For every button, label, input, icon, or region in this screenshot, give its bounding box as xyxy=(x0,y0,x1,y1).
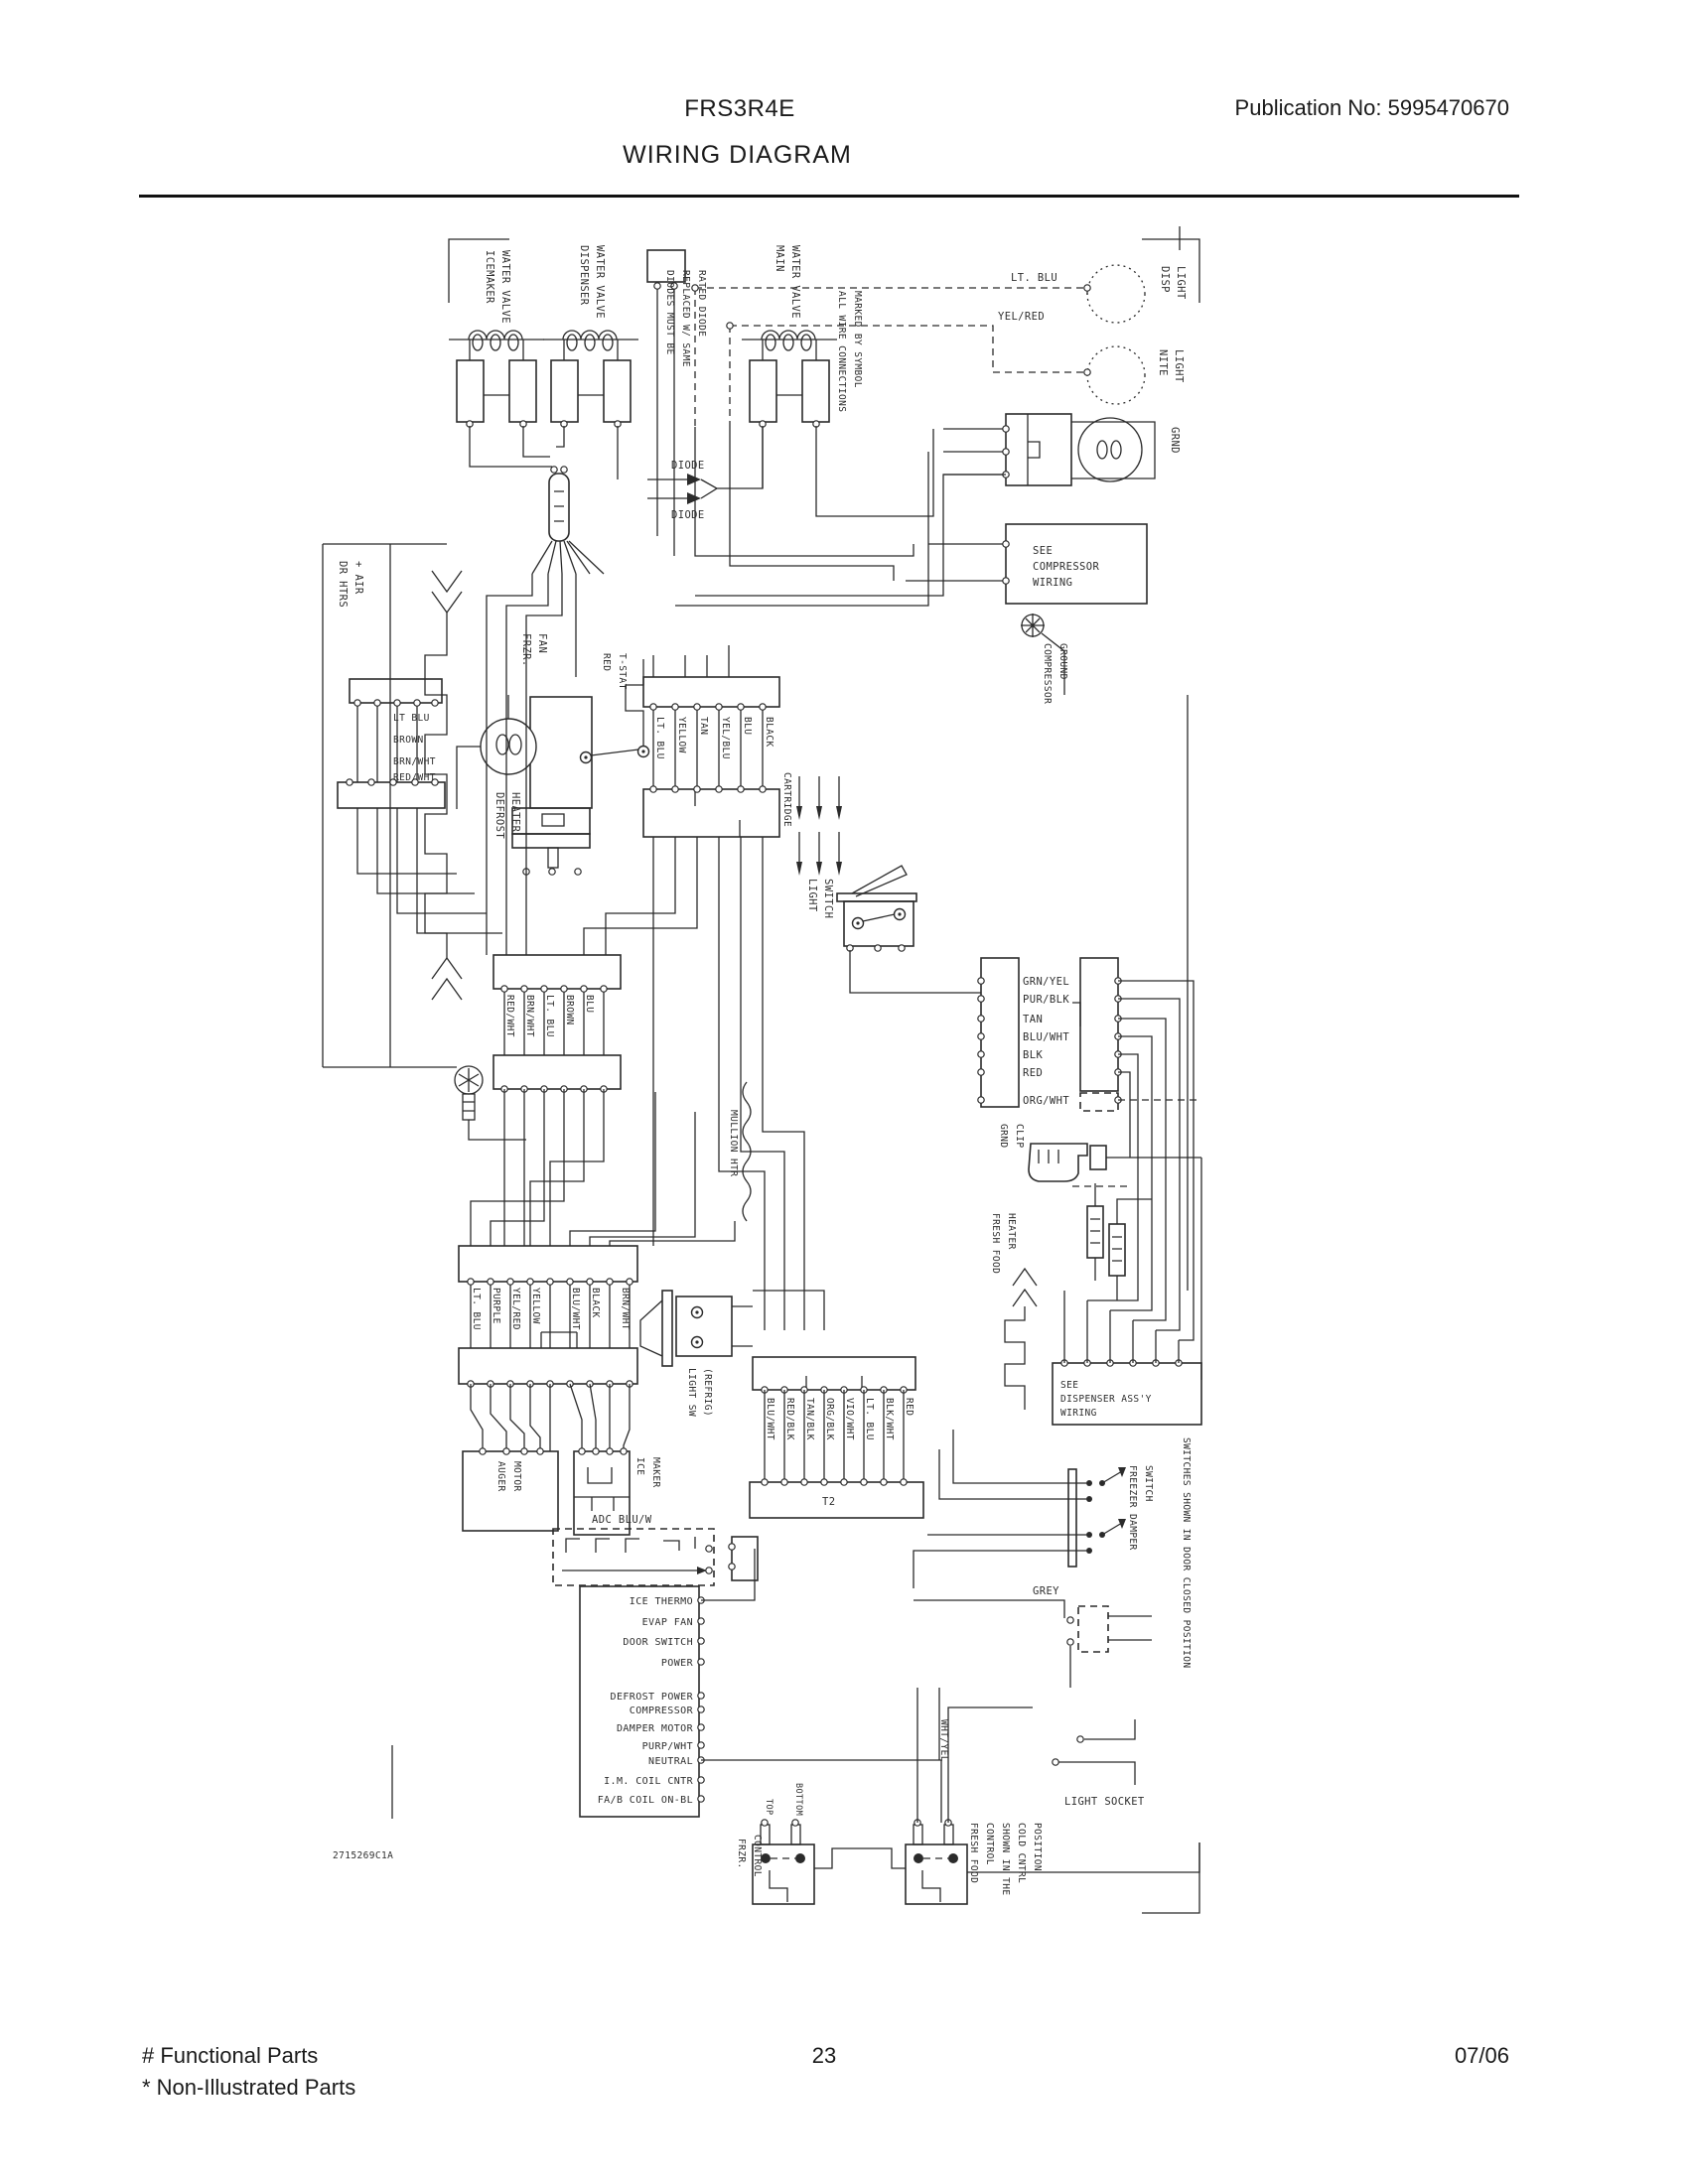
defrost-heater-label: DEFROST xyxy=(493,792,505,839)
nite-light-label: NITE xyxy=(1157,349,1169,376)
diode-note: DIODES MUST BE xyxy=(664,270,675,355)
auger-motor-label: AUGER xyxy=(495,1461,506,1492)
ice-maker-label2: MAKER xyxy=(650,1457,661,1488)
wht-yel-label: WHT/YEL xyxy=(938,1719,949,1762)
board-row-purp-wht: PURP/WHT xyxy=(642,1741,693,1752)
see-dispenser-line1: SEE xyxy=(1060,1380,1078,1391)
c1-wire-5: BLACK xyxy=(764,717,774,748)
diode-note3: RATED DIODE xyxy=(696,270,707,337)
c4-wire-2: TAN xyxy=(1023,1014,1043,1025)
red-tstat-label2: T-STAT xyxy=(617,653,628,690)
see-dispenser-line3: WIRING xyxy=(1060,1408,1097,1419)
light-switch-label: LIGHT xyxy=(806,879,818,912)
t2-label: T2 xyxy=(822,1496,835,1508)
see-compressor-line3: WIRING xyxy=(1033,577,1072,589)
c6-wire-2: TAN/BLK xyxy=(804,1398,815,1440)
footer-date-code: 07/06 xyxy=(1370,2043,1509,2069)
board-row-damper-motor: DAMPER MOTOR xyxy=(617,1723,694,1734)
adc-wire-label: ADC BLU/W xyxy=(592,1514,652,1526)
top-label: TOP xyxy=(764,1799,774,1816)
compressor-ground-label: COMPRESSOR xyxy=(1042,643,1053,704)
diode-note2: REPLACED W/ SAME xyxy=(680,270,691,367)
fuse-links xyxy=(1087,1183,1152,1300)
board-row-defrost-power: DEFROST POWER xyxy=(611,1692,694,1703)
ff-heater-label2: HEATER xyxy=(1006,1213,1017,1250)
connections-note2: MARKED BY SYMBOL xyxy=(852,291,863,388)
ice-maker-dashed-box xyxy=(553,1529,758,1585)
valve3-label2: WATER VALVE xyxy=(789,245,801,319)
board-row-power: POWER xyxy=(661,1658,694,1669)
c5-wire-6: BRN/WHT xyxy=(620,1288,631,1330)
light-sw-refrig-label: LIGHT SW xyxy=(686,1368,697,1417)
defrost-heater-element xyxy=(323,544,462,1067)
c6-wire-7: RED xyxy=(904,1398,914,1416)
c5-wire-2: YEL/RED xyxy=(510,1288,521,1330)
mullion-heater-label: MULLION HTR xyxy=(728,1110,739,1176)
see-compressor-wiring-box xyxy=(906,524,1147,604)
ff-control-label: FRESH FOOD xyxy=(968,1823,979,1883)
c3-wire-4: BLU xyxy=(584,995,595,1013)
ff-control-label2: CONTROL xyxy=(984,1823,995,1865)
c1-wire-0: LT. BLU xyxy=(654,717,665,759)
valve2-label2: WATER VALVE xyxy=(594,245,606,319)
dr-htrs-label: DR HTRS xyxy=(337,561,349,608)
grnd-clip-label: GRND xyxy=(998,1124,1009,1148)
diode-label-top: DIODE xyxy=(671,460,705,472)
harness-sleeve xyxy=(532,250,685,574)
diagram-part-code: 2715269C1A xyxy=(333,1850,393,1861)
c5-wire-0: LT. BLU xyxy=(471,1288,482,1330)
cartridge-label: CARTRIDGE xyxy=(781,772,792,827)
light-socket xyxy=(1053,1719,1135,1785)
defrost-heater-label2: HEATER xyxy=(509,792,521,833)
dispenser-light-circuit xyxy=(692,265,1145,427)
valve1-label2: WATER VALVE xyxy=(499,250,511,324)
c3-wire-2: LT. BLU xyxy=(544,995,555,1037)
freezer-fan-motor xyxy=(457,695,592,875)
c3-wire-0: RED/WHT xyxy=(504,995,515,1037)
board-row-evap-fan: EVAP FAN xyxy=(642,1617,693,1628)
grey-wire-switch xyxy=(993,1600,1152,1688)
see-dispenser-line2: DISPENSER ASS'Y xyxy=(1060,1394,1152,1405)
water-valve-solenoids xyxy=(449,331,837,427)
footer-non-illustrated-parts: * Non-Illustrated Parts xyxy=(142,2075,355,2101)
frzr-control-label: FRZR. xyxy=(736,1839,747,1869)
grey-label: GREY xyxy=(1033,1585,1059,1597)
grnd-label: GRND xyxy=(1169,427,1181,454)
c1-wire-2: TAN xyxy=(698,717,709,735)
connector-c5 xyxy=(459,1246,637,1451)
c5-wire-4: BLU/WHT xyxy=(570,1288,581,1330)
bottom-label: BOTTOM xyxy=(793,1783,803,1816)
connector-c3 xyxy=(455,955,621,1140)
c4-wire-1: PUR/BLK xyxy=(1023,994,1069,1006)
fresh-food-heater-element xyxy=(1005,1269,1037,1410)
dr-htrs-label2: + AIR xyxy=(352,561,364,595)
grnd-clip-label2: CLIP xyxy=(1014,1124,1025,1148)
c6-wire-4: VIO/WHT xyxy=(844,1398,855,1440)
c5-wire-3: YELLOW xyxy=(530,1288,541,1324)
c1-wire-4: BLU xyxy=(742,717,753,735)
board-row-im-coil: I.M. COIL CNTR xyxy=(604,1776,693,1787)
c2-wire-2: BRN/WHT xyxy=(393,756,436,767)
board-row-fab-coil: FA/B COIL ON-BL xyxy=(598,1795,693,1806)
frzr-control-label2: CONTROL xyxy=(752,1835,763,1877)
c1-wire-3: YEL/BLU xyxy=(720,717,731,759)
yel-red-label: YEL/RED xyxy=(998,311,1045,323)
board-row-compressor: COMPRESSOR xyxy=(630,1706,694,1716)
cartridge-connector-pins xyxy=(796,776,842,876)
diode-label-bottom: DIODE xyxy=(671,509,705,521)
c2-wire-3: RED/WHT xyxy=(393,772,436,783)
fresh-food-control-switch xyxy=(814,1820,967,1904)
disp-light-label: DISP xyxy=(1159,266,1171,293)
freezer-damper-switch xyxy=(993,1467,1126,1567)
c6-wire-5: LT. BLU xyxy=(864,1398,875,1440)
c2-wire-0: LT BLU xyxy=(393,713,430,724)
c4-wire-0: GRN/YEL xyxy=(1023,976,1069,988)
see-compressor-line1: SEE xyxy=(1033,545,1053,557)
corner-marks xyxy=(392,226,1199,1913)
switch-note: SWITCHES SHOWN IN DOOR CLOSED POSITION xyxy=(1181,1437,1192,1669)
ff-heater-label: FRESH FOOD xyxy=(990,1213,1001,1274)
auger-motor-box xyxy=(463,1448,558,1531)
manual-page: FRS3R4E Publication No: 5995470670 WIRIN… xyxy=(0,0,1688,2184)
c3-wire-3: BROWN xyxy=(564,995,575,1025)
lt-blu-label: LT. BLU xyxy=(1011,272,1057,284)
ground-clip xyxy=(1029,1144,1201,1186)
light-socket-label: LIGHT SOCKET xyxy=(1064,1796,1145,1808)
c6-wire-1: RED/BLK xyxy=(784,1398,795,1440)
ff-control-note: SHOWN IN THE xyxy=(1000,1823,1011,1895)
t2-connector xyxy=(750,1479,923,1518)
c4-wire-4: BLK xyxy=(1023,1049,1043,1061)
c6-wire-0: BLU/WHT xyxy=(765,1398,775,1440)
board-row-door-switch: DOOR SWITCH xyxy=(623,1637,693,1648)
board-row-ice-thermo: ICE THERMO xyxy=(630,1596,693,1607)
refrig-light-switch xyxy=(640,1291,753,1366)
disp-light-label2: LIGHT xyxy=(1175,266,1187,300)
valve3-label: MAIN xyxy=(774,245,785,272)
c4-wire-6: ORG/WHT xyxy=(1023,1095,1069,1107)
c5-wire-1: PURPLE xyxy=(491,1288,501,1324)
defrost-thermostat xyxy=(581,659,649,763)
c5-wire-5: BLACK xyxy=(590,1288,601,1318)
connections-note: ALL WIRE CONNECTIONS xyxy=(836,291,847,412)
ff-control-note2: COLD CNTRL xyxy=(1016,1823,1027,1883)
damper-switch-label2: SWITCH xyxy=(1143,1465,1154,1502)
light-switch xyxy=(837,866,916,951)
damper-switch-label: FREEZER DAMPER xyxy=(1127,1465,1138,1551)
c6-wire-6: BLK/WHT xyxy=(884,1398,895,1440)
nite-light-label2: LIGHT xyxy=(1173,349,1185,383)
frzr-fan-label: FRZR. xyxy=(520,633,532,667)
see-compressor-line2: COMPRESSOR xyxy=(1033,561,1099,573)
c6-wire-3: ORG/BLK xyxy=(824,1398,835,1440)
c3-wire-1: BRN/WHT xyxy=(524,995,535,1037)
wiring-diagram: ICEMAKER WATER VALVE DISPENSER WATER VAL… xyxy=(0,0,1688,2184)
auger-motor-label2: MOTOR xyxy=(511,1461,522,1492)
light-sw-refrig-label2: (REFRIG) xyxy=(702,1368,713,1417)
valve1-label: ICEMAKER xyxy=(484,250,495,304)
frzr-fan-label2: FAN xyxy=(536,633,548,653)
compressor-ground-label2: GROUND xyxy=(1057,643,1068,680)
board-row-neutral: NEUTRAL xyxy=(648,1756,693,1767)
c2-wire-1: BROWN xyxy=(393,735,424,746)
ff-control-note3: POSITION xyxy=(1032,1823,1043,1871)
light-switch-label2: SWITCH xyxy=(822,879,834,918)
diode-symbols xyxy=(647,427,763,504)
valve2-label: DISPENSER xyxy=(578,245,590,306)
c4-wire-5: RED xyxy=(1023,1067,1043,1079)
c1-wire-1: YELLOW xyxy=(676,717,687,753)
ice-maker-label: ICE xyxy=(634,1457,645,1475)
red-tstat-label: RED xyxy=(601,653,612,671)
c4-wire-3: BLU/WHT xyxy=(1023,1031,1069,1043)
